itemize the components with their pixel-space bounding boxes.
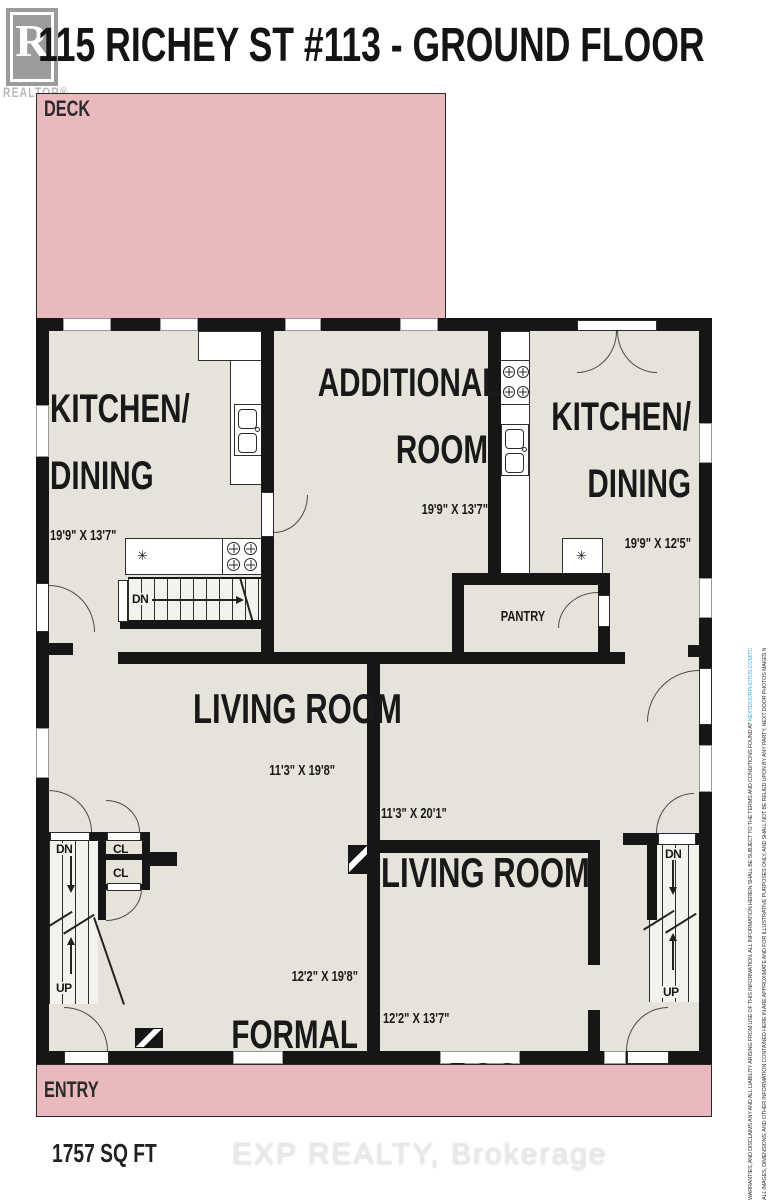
room-name: LIVING ROOM — [381, 854, 590, 893]
room-dims: 19'9" X 12'5" — [521, 537, 691, 551]
stove-burner — [227, 558, 240, 571]
closet-door-jamb — [107, 832, 141, 841]
deck-label: DECK — [44, 99, 90, 119]
chimney-hatch — [135, 1028, 163, 1048]
stove-burner — [503, 366, 515, 378]
room-additional: ADDITIONAL ROOM 19'9" X 13'7" — [318, 336, 488, 546]
window — [699, 423, 712, 463]
stair-arrow-line — [70, 856, 72, 886]
room-dims: 19'9" X 13'7" — [318, 503, 488, 517]
pantry-door-jamb — [598, 595, 610, 627]
stair-arrow-line — [672, 858, 674, 888]
door-jamb — [699, 668, 712, 725]
room-formal-dining: 12'2" X 19'8" FORMAL DINING — [188, 941, 358, 1149]
room-name: FORMAL — [188, 1017, 358, 1054]
room-dims: 12'2" X 19'8" — [188, 970, 358, 984]
room-name: KITCHEN/ — [50, 391, 190, 428]
wall-closet-right — [142, 841, 150, 890]
stove-burner — [503, 386, 515, 398]
stair-arrow-line — [672, 940, 674, 970]
room-name: LIVING ROOM — [193, 690, 335, 729]
window — [604, 1051, 626, 1064]
room-dims: 12'2" X 13'7" — [383, 1012, 545, 1026]
room-name: DINING — [521, 466, 691, 503]
wall-closet-stub — [150, 852, 177, 866]
wall-closet-left — [98, 841, 106, 920]
area-sqft: 1757 SQ FT — [52, 1142, 157, 1166]
room-dims: 11'3" X 20'1" — [381, 807, 590, 821]
sink-left-kitchen — [234, 404, 262, 456]
door-jamb — [627, 1051, 669, 1064]
deck-area — [36, 93, 446, 320]
room-dims: 19'9" X 13'7" — [50, 529, 190, 543]
wall-kitchen-divider-upper — [261, 331, 274, 492]
disclaimer-line-2: WARRANTIES, AND DISCLAIMS ANY AND ALL LI… — [748, 646, 759, 1200]
entry-door-jamb — [64, 1051, 109, 1064]
room-kitchen-left: KITCHEN/ DINING 19'9" X 13'7" — [50, 362, 190, 572]
stairs-up-label: UP — [55, 982, 73, 994]
stair-arrow-line — [70, 944, 72, 974]
window — [699, 578, 712, 618]
stair-arrow-line — [152, 599, 236, 601]
stair-arrow-head — [669, 887, 677, 895]
counter-top-left-kitchen — [198, 331, 263, 361]
faucet-dot — [255, 427, 260, 432]
wall-pantry-right-lower — [598, 627, 610, 652]
wall-stub-left — [49, 643, 73, 655]
door-jamb — [658, 833, 696, 845]
wall-bedroom-right-lower — [588, 1010, 600, 1051]
room-living-right: 11'3" X 20'1" LIVING ROOM — [381, 778, 590, 922]
stairs-dn-label: DN — [55, 843, 73, 855]
stove-burner — [244, 542, 257, 555]
room-name: KITCHEN/ — [521, 399, 691, 436]
brokerage-watermark: EXP REALTY, Brokerage — [232, 1138, 608, 1172]
stair-arrow-head — [67, 885, 75, 893]
stove-burner — [227, 542, 240, 555]
disclaimer-line-2-text: WARRANTIES, AND DISCLAIMS ANY AND ALL LI… — [748, 721, 754, 1200]
double-door-jamb — [577, 320, 657, 331]
stairs-dn-label: DN — [664, 848, 682, 860]
door-jamb — [261, 492, 274, 537]
room-name: ADDITIONAL — [318, 365, 488, 402]
stove-burner — [244, 558, 257, 571]
chimney-hatch — [348, 845, 368, 874]
stair-arrow-head — [236, 596, 244, 604]
room-kitchen-right: KITCHEN/ DINING 19'9" X 12'5" — [521, 370, 691, 580]
wall-kitchen-stair-bottom — [120, 620, 262, 629]
stairs-left — [49, 841, 98, 1004]
pantry-label: PANTRY — [473, 610, 574, 624]
stairs-up-label: UP — [662, 986, 680, 998]
window — [285, 318, 321, 331]
stairs-dn-label: DN — [131, 593, 149, 605]
room-name: DINING — [50, 458, 190, 495]
wall-kitchen-divider-lower — [261, 537, 274, 660]
window — [36, 405, 49, 457]
door-jamb — [118, 580, 128, 622]
door-jamb — [36, 583, 49, 632]
window — [160, 318, 198, 331]
stove-left-kitchen — [222, 538, 262, 575]
floor-plan-page: R REALTOR® 115 RICHEY ST #113 - GROUND F… — [0, 0, 776, 1200]
disclaimer-url: NEXTDOORPHOTOS.COM/TC — [748, 648, 754, 721]
entry-label: ENTRY — [44, 1080, 99, 1100]
sink-basin — [238, 409, 257, 429]
room-living-left: LIVING ROOM 11'3" X 19'8" — [193, 661, 335, 807]
closet-label: CL — [113, 843, 128, 855]
stair-arrow-head — [669, 933, 677, 941]
page-title: 115 RICHEY ST #113 - GROUND FLOOR — [38, 18, 705, 73]
wall-pantry-left — [452, 585, 464, 652]
stair-arrow-head — [67, 937, 75, 945]
window — [400, 318, 438, 331]
entry-area — [36, 1064, 712, 1117]
window — [36, 728, 49, 778]
room-name: ROOM — [318, 432, 488, 469]
room-dims: 11'3" X 19'8" — [193, 764, 335, 778]
disclaimer-line-1: ALL IMAGES, DIMENSIONS, AND OTHER INFORM… — [762, 648, 773, 1200]
closet-door-jamb — [50, 832, 90, 841]
wall-right-stair-left — [647, 845, 657, 920]
sink-basin — [238, 433, 257, 453]
wall-stub-right — [688, 645, 699, 657]
window — [63, 318, 111, 331]
wall-pantry-right-upper — [598, 585, 610, 595]
closet-label: CL — [113, 867, 128, 879]
window — [699, 745, 712, 792]
